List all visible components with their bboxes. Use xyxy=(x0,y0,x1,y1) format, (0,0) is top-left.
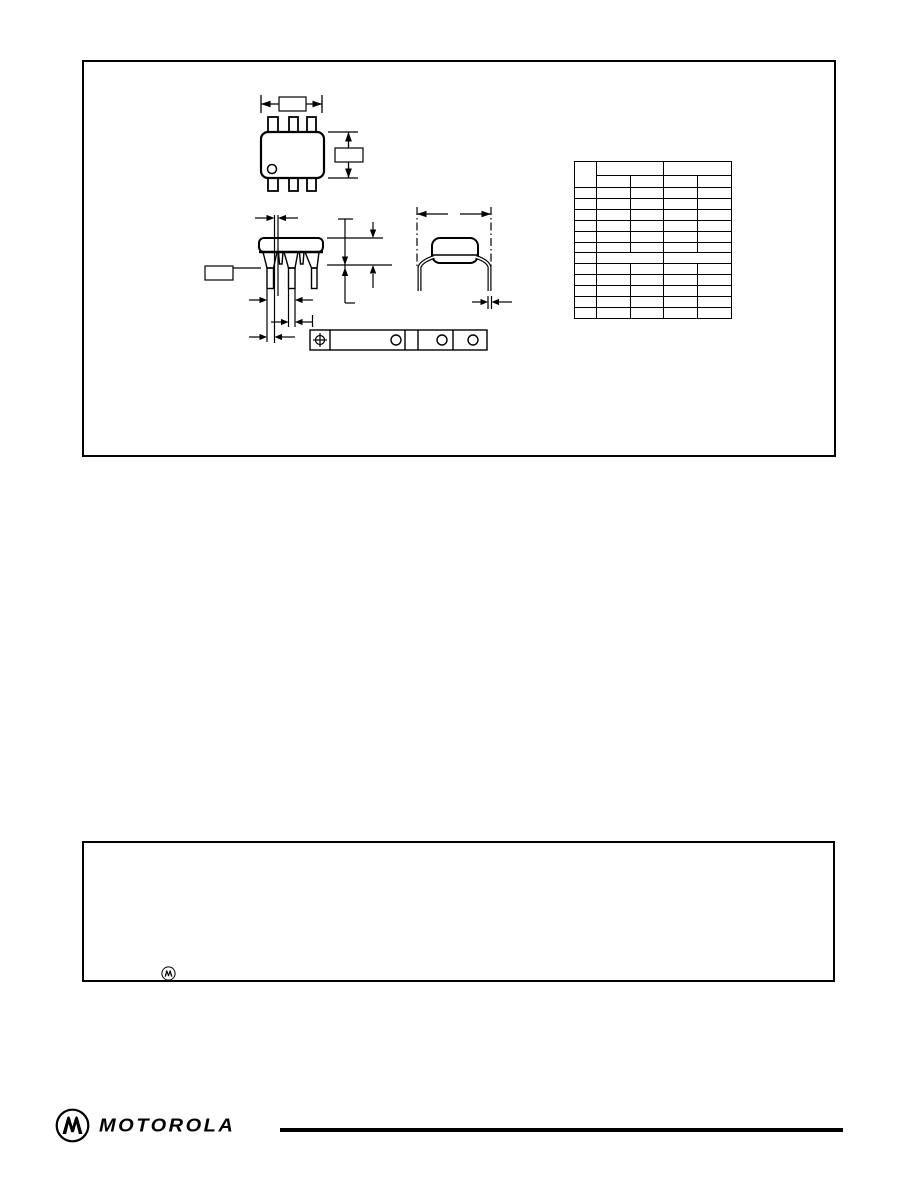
arrowhead-up xyxy=(345,132,352,142)
dim-table-cell xyxy=(597,242,631,253)
dim-table-cell xyxy=(631,297,664,308)
dim-table-cell xyxy=(698,307,732,318)
dim-table-cell xyxy=(664,264,698,275)
dim-table-cell xyxy=(597,231,631,242)
dim-table-cell xyxy=(631,188,664,199)
dim-table-cell xyxy=(597,176,631,188)
dim-table-cell xyxy=(575,220,597,231)
dim-table-cell xyxy=(631,198,664,209)
motorola-m-in-circle-icon-small xyxy=(161,966,176,981)
dim-table-cell xyxy=(698,231,732,242)
dim-table-cell xyxy=(664,198,698,209)
dim-table-cell xyxy=(664,275,698,286)
side-view-lead-thickness-dim xyxy=(472,296,512,309)
dimension-table-container xyxy=(574,161,732,319)
dim-table-cell xyxy=(597,162,664,176)
dim-table-cell xyxy=(631,231,664,242)
dim-table-cell xyxy=(575,307,597,318)
brand-wordmark: MOTOROLA xyxy=(99,1116,259,1137)
dim-table-cell xyxy=(664,286,698,297)
dim-table-cell xyxy=(631,264,664,275)
front-view-lead-shoulders xyxy=(263,252,319,268)
dim-table-cell xyxy=(597,307,631,318)
dim-table-cell xyxy=(664,297,698,308)
dim-table-cell xyxy=(575,188,597,199)
top-view-upper-leads xyxy=(268,117,316,132)
top-view-lower-leads xyxy=(268,178,316,191)
dim-table-cell xyxy=(575,209,597,220)
dim-table-cell xyxy=(631,242,664,253)
dim-label-box-top-height xyxy=(335,148,363,162)
dim-table-cell xyxy=(631,286,664,297)
dim-table-cell xyxy=(597,209,631,220)
dim-table-cell xyxy=(575,242,597,253)
disclaimer-box xyxy=(82,841,835,982)
dim-table-cell xyxy=(698,286,732,297)
dim-table-cell xyxy=(631,275,664,286)
front-view-height-dims xyxy=(327,219,392,303)
dim-table-cell xyxy=(575,253,597,264)
dim-table-cell xyxy=(575,162,597,188)
dim-table-cell xyxy=(575,198,597,209)
dim-label-box-front-left xyxy=(205,266,233,280)
dim-table-cell xyxy=(698,209,732,220)
dim-table-cell xyxy=(597,188,631,199)
dim-table-cell xyxy=(664,188,698,199)
dim-table-cell xyxy=(664,209,698,220)
dim-table-cell xyxy=(698,297,732,308)
footer-rule xyxy=(280,1128,843,1132)
motorola-m-in-circle-logo xyxy=(54,1107,91,1144)
footprint-view-drawing xyxy=(310,330,487,350)
pad-hole-circle xyxy=(437,335,447,345)
dim-table-cell xyxy=(698,176,732,188)
dim-table-cell xyxy=(664,220,698,231)
side-view-body xyxy=(432,238,478,263)
dim-table-cell xyxy=(597,275,631,286)
dim-table-cell xyxy=(664,242,698,253)
front-view-body xyxy=(259,238,323,252)
dim-table-cell xyxy=(597,286,631,297)
dim-table-cell xyxy=(664,307,698,318)
dim-table-cell xyxy=(664,176,698,188)
dim-table-cell xyxy=(698,220,732,231)
dim-table-cell xyxy=(698,275,732,286)
arrowhead-left xyxy=(261,100,271,107)
datum-target-symbol xyxy=(313,333,327,347)
dim-table-cell xyxy=(631,209,664,220)
dim-table-cell xyxy=(597,264,631,275)
front-view-bottom-dims xyxy=(249,289,313,342)
dim-table-cell xyxy=(575,286,597,297)
datasheet-page: { "page": { "paper_color": "#ffffff", "i… xyxy=(0,0,918,1188)
pad-hole-circle xyxy=(391,335,401,345)
dim-table-cell xyxy=(597,297,631,308)
top-view-body xyxy=(261,132,324,178)
dim-table-cell xyxy=(698,188,732,199)
dim-table-cell xyxy=(631,220,664,231)
dim-table-cell xyxy=(664,253,732,264)
dim-table-cell xyxy=(597,220,631,231)
dimension-table xyxy=(574,161,732,319)
dim-table-cell xyxy=(575,297,597,308)
dim-table-cell xyxy=(597,198,631,209)
package-drawing-panel xyxy=(82,60,836,457)
pad-hole-circle xyxy=(468,335,478,345)
top-view-drawing xyxy=(261,95,363,191)
dim-table-cell xyxy=(575,264,597,275)
arrowhead-down xyxy=(345,168,352,178)
dim-table-cell xyxy=(698,264,732,275)
dim-table-cell xyxy=(631,176,664,188)
arrowhead-right xyxy=(312,100,322,107)
side-view-drawing xyxy=(417,207,512,309)
dim-table-cell xyxy=(597,253,664,264)
dim-table-cell xyxy=(575,231,597,242)
dim-table-cell xyxy=(698,242,732,253)
dim-table-cell xyxy=(575,275,597,286)
dim-table-cell xyxy=(664,162,732,176)
front-view-drawing xyxy=(205,214,392,342)
dim-table-cell xyxy=(698,198,732,209)
dim-label-box-top-width xyxy=(279,97,306,111)
dim-table-cell xyxy=(664,231,698,242)
pin1-indicator-circle xyxy=(267,164,276,173)
dim-table-cell xyxy=(631,307,664,318)
